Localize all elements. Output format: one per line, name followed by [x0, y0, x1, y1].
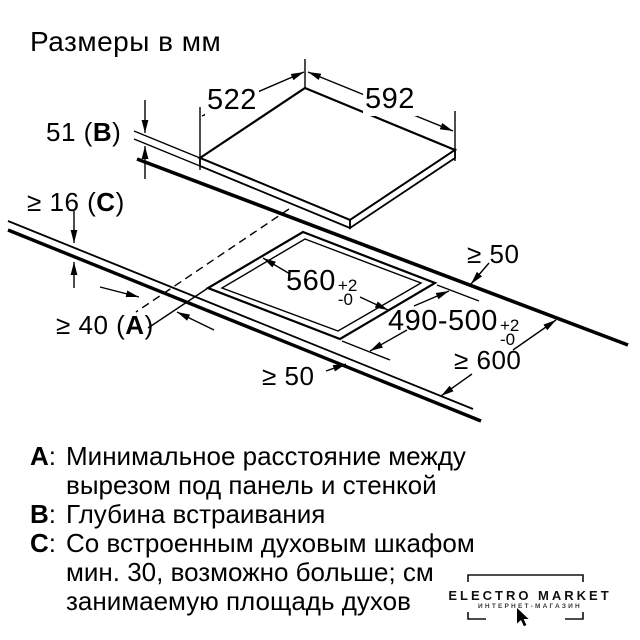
watermark-title: ELECTRO MARKET — [420, 588, 640, 603]
legend-line-a2: вырезом под панель и стенкой — [66, 470, 437, 501]
dim-label-600: ≥ 600 — [454, 345, 521, 376]
frame-corner-bottom-right — [565, 612, 583, 619]
depth600-leader-down — [441, 374, 472, 396]
tolerance-560: +2-0 — [338, 279, 357, 307]
dim-label-50-back: ≥ 50 — [467, 239, 519, 270]
page-title: Размеры в мм — [30, 26, 221, 58]
frame-top — [468, 575, 583, 582]
clearance-front-leader — [326, 364, 346, 371]
a-arrow-right — [100, 287, 139, 297]
dim-label-40a: ≥ 40 (A) — [56, 310, 154, 341]
legend-line-a1: A:Минимальное расстояние между — [30, 441, 466, 472]
manual-page: Размеры в мм 522 592 51 (B) ≥ 16 (C) ≥ 4… — [0, 0, 640, 640]
frame-corner-bottom-left — [468, 612, 486, 619]
dim-label-50-front: ≥ 50 — [262, 361, 314, 392]
tolerance-490: +2-0 — [500, 319, 519, 347]
b-extension-top — [134, 131, 200, 158]
legend-line-b1: B:Глубина встраивания — [30, 499, 325, 530]
dim-label-592: 592 — [363, 83, 417, 116]
watermark-logo: ELECTRO MARKET ИНТЕРНЕТ-МАГАЗИН — [420, 552, 640, 640]
dim-label-490-500: 490-500+2-0 — [388, 305, 519, 346]
legend-line-c1: C:Со встроенным духовым шкафом — [30, 528, 475, 559]
dim-label-16c: ≥ 16 (C) — [27, 187, 125, 218]
dim-label-522: 522 — [205, 84, 259, 117]
dim-label-51b: 51 (B) — [46, 117, 121, 148]
cursor-icon — [517, 608, 529, 626]
a-arrow-left — [177, 312, 214, 330]
watermark-subtitle: ИНТЕРНЕТ-МАГАЗИН — [420, 603, 640, 610]
legend-line-c2: мин. 30, возможно больше; см — [66, 557, 434, 588]
dim-label-560: 560+2-0 — [286, 265, 357, 306]
legend-line-c3: занимаемую площадь духов — [66, 586, 411, 617]
